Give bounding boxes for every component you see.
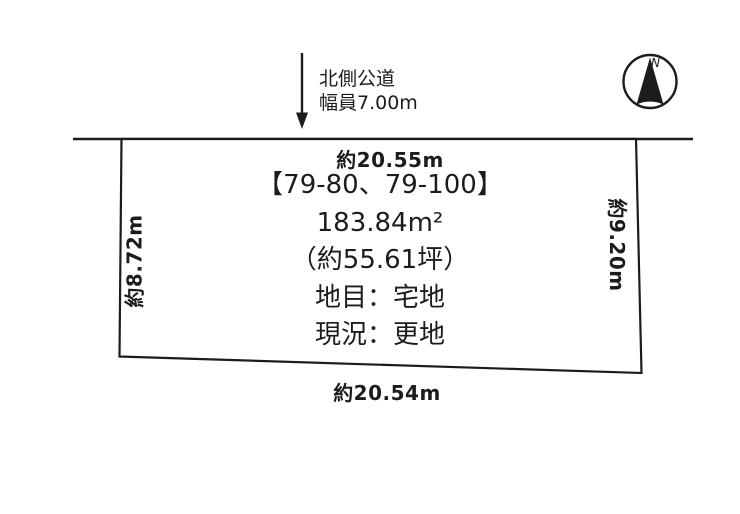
road-arrow-head-icon: [296, 113, 308, 130]
current-status: 現況：更地: [122, 317, 638, 355]
road-width-label: 幅員7.00m: [319, 92, 418, 116]
plot-info: 【79-80、79-100】 183.84m² （約55.61坪） 地目：宅地 …: [122, 167, 638, 355]
road-name-label: 北側公道: [319, 68, 418, 92]
dimension-bottom: 約20.54m: [287, 377, 487, 406]
area-sqm: 183.84m²: [122, 205, 638, 243]
land-category: 地目：宅地: [122, 280, 638, 318]
compass-north-label: N: [651, 56, 660, 70]
road-annotation: 北側公道 幅員7.00m: [319, 68, 418, 115]
area-tsubo: （約55.61坪）: [122, 242, 638, 280]
parcel-numbers: 【79-80、79-100】: [122, 167, 638, 205]
land-plot-diagram: N 北側公道 幅員7.00m 約20.55m 約20.54m 約8.72m 約9…: [0, 0, 740, 514]
